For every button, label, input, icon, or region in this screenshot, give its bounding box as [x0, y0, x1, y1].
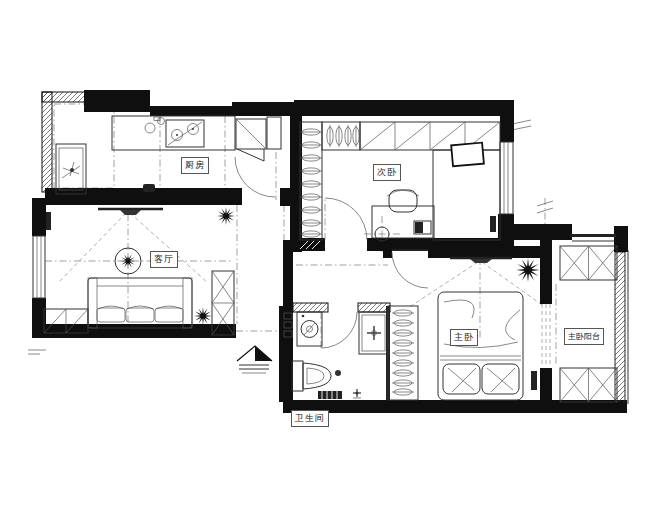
- entry-arrow-icon: [237, 346, 272, 373]
- double-bed-icon: [438, 292, 523, 400]
- floor-drain-icon: [335, 370, 341, 376]
- wall-switch: [143, 184, 155, 192]
- plant-icon: [217, 207, 235, 225]
- fridge-icon: [236, 119, 266, 161]
- floor-plan-drawing: [0, 0, 650, 520]
- toilet-icon: [292, 361, 331, 391]
- master-bedroom-door-swing: [392, 250, 428, 288]
- room-label-master-bedroom: 主卧: [450, 329, 478, 346]
- balcony-furniture: [560, 246, 617, 402]
- x-storage-cabinet: [560, 368, 617, 402]
- desk-and-chair-icon: [372, 190, 434, 238]
- living-room-window: [33, 236, 45, 298]
- kitchen-counter: [112, 116, 235, 150]
- bath-heater: [318, 391, 342, 399]
- wash-basin-icon: [359, 312, 388, 354]
- tall-cabinet: [267, 117, 281, 149]
- room-label-secondary-bedroom: 次卧: [373, 164, 401, 181]
- floor-plan: 厨房 次卧 客厅 主卧 主卧阳台 卫生间: [0, 0, 650, 520]
- secondary-bedroom-furniture: [300, 122, 500, 241]
- plant-icon: [516, 258, 540, 282]
- room-label-bathroom: 卫生间: [291, 410, 329, 427]
- laundry-sink-icon: [56, 144, 86, 194]
- curtain-box: [490, 216, 496, 232]
- kitchen-sink-icon: [145, 117, 165, 133]
- plant-icon: [194, 307, 212, 325]
- secondary-bedroom-window: [500, 142, 513, 214]
- x-storage-cabinet: [560, 246, 617, 280]
- room-label-living-room: 客厅: [150, 251, 178, 268]
- bathroom-fixtures: [284, 312, 388, 399]
- bathroom-door-swing: [321, 312, 357, 348]
- kitchen-fixtures: [56, 116, 281, 194]
- doors: [235, 152, 428, 348]
- shower-mixer-icon: [353, 389, 361, 398]
- gas-stove-icon: [166, 120, 204, 147]
- balcony-door-window: [542, 304, 550, 366]
- radiator: [46, 212, 51, 230]
- washing-machine-icon: [297, 312, 322, 346]
- sofa-icon: [88, 278, 192, 328]
- master-closet-hangers: [388, 306, 418, 400]
- tatami-bed-icon: [433, 143, 500, 240]
- curtain-box: [531, 371, 537, 390]
- tv-icon: [450, 258, 512, 263]
- room-label-kitchen: 厨房: [181, 157, 209, 174]
- living-room-furniture: [44, 207, 235, 335]
- secondary-bedroom-door-swing: [325, 198, 367, 240]
- wardrobe-hangers: [300, 122, 360, 240]
- room-label-master-balcony: 主卧阳台: [564, 328, 604, 345]
- tv-icon: [98, 209, 163, 215]
